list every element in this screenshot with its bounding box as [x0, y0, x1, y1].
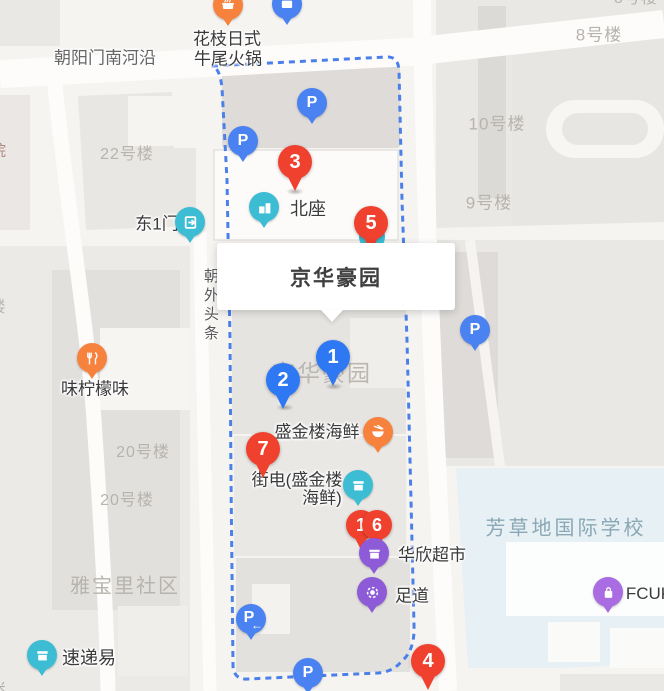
- parking-icon: P: [228, 126, 258, 156]
- popup-title: 京华豪园: [217, 243, 455, 310]
- locker-icon: [27, 640, 57, 670]
- zudao-massage-pin[interactable]: [357, 577, 387, 617]
- parking-icon: P: [297, 88, 327, 118]
- huaxin-market-pin[interactable]: [359, 538, 389, 578]
- result-marker-2[interactable]: 2: [266, 363, 300, 409]
- poi-label-shengjinlou[interactable]: 盛金楼海鲜: [275, 418, 360, 443]
- fork-knife-icon: [77, 343, 107, 373]
- building-icon: [249, 192, 279, 222]
- hotpot-restaurant-pin[interactable]: [213, 0, 243, 30]
- entrance-arrow-icon: ←: [251, 618, 263, 632]
- parking-pin-northwest[interactable]: P: [228, 126, 258, 166]
- poi-label-beizuo[interactable]: 北座: [290, 195, 326, 221]
- market-icon: [359, 538, 389, 568]
- sudiyi-locker-pin[interactable]: [27, 640, 57, 680]
- east-gate-pin[interactable]: [175, 207, 205, 247]
- beizuo-building-pin[interactable]: [249, 192, 279, 232]
- poi-label-jiedian-line2[interactable]: 海鲜): [302, 484, 342, 509]
- result-marker-7[interactable]: 7: [246, 432, 280, 478]
- poi-label-sudiyi[interactable]: 速递易: [62, 644, 116, 670]
- jiedian-storefront-pin[interactable]: [343, 470, 373, 510]
- lemon-restaurant-pin[interactable]: [77, 343, 107, 383]
- seafood-restaurant-pin[interactable]: [363, 417, 393, 457]
- map-canvas[interactable]: 22号楼 8号楼 8号楼 10号楼 9号楼 20号楼 20号楼 雅宝里社区 京华…: [0, 0, 664, 691]
- parking-pin-east[interactable]: P: [460, 315, 490, 355]
- fcuk-store-pin[interactable]: [593, 577, 623, 617]
- parking-icon: P: [293, 658, 323, 688]
- massage-wheel-icon: [357, 577, 387, 607]
- poi-label-huaxin[interactable]: 华欣超市: [398, 541, 466, 566]
- info-popup[interactable]: 京华豪园: [217, 243, 455, 310]
- result-marker-4[interactable]: 4: [411, 644, 445, 690]
- result-marker-1-blue[interactable]: 1: [316, 340, 350, 386]
- storefront-icon: [343, 470, 373, 500]
- hotpot-icon: [213, 0, 243, 20]
- bowl-chopsticks-icon: [363, 417, 393, 447]
- result-marker-3[interactable]: 3: [278, 145, 312, 191]
- unknown-blue-poi-pin[interactable]: [272, 0, 302, 29]
- parking-entrance-pin[interactable]: P ←: [236, 604, 266, 644]
- parking-pin-south[interactable]: P: [293, 658, 323, 691]
- parking-pin-north[interactable]: P: [297, 88, 327, 128]
- gate-exit-icon: [175, 207, 205, 237]
- poi-label-zudao[interactable]: 足道: [395, 582, 429, 607]
- poi-label-huazhi-line2[interactable]: 牛尾火锅: [194, 45, 262, 70]
- parking-icon: P: [460, 315, 490, 345]
- handbag-icon: [593, 577, 623, 607]
- card-icon: [272, 0, 302, 19]
- poi-label-east-gate[interactable]: 东1门: [135, 210, 178, 235]
- poi-label-fcuk[interactable]: FCUK: [626, 584, 664, 604]
- road-label-chaoyangmen: 朝阳门南河沿: [54, 44, 156, 69]
